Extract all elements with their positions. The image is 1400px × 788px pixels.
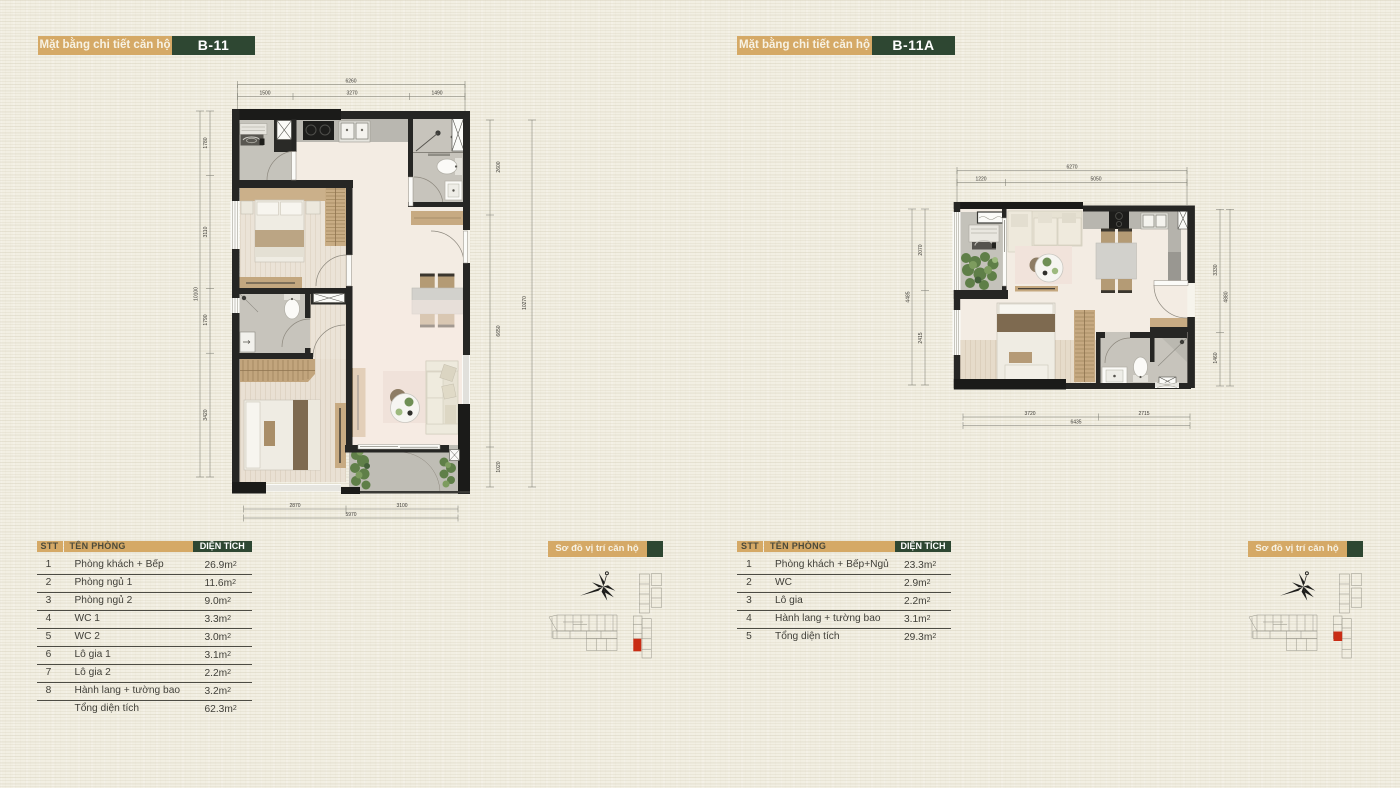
svg-text:1780: 1780 <box>203 137 209 148</box>
svg-text:2870: 2870 <box>289 503 300 509</box>
svg-text:6650: 6650 <box>496 325 502 336</box>
svg-text:2600: 2600 <box>496 161 502 172</box>
svg-text:3270: 3270 <box>346 91 357 97</box>
svg-text:2715: 2715 <box>1138 411 1149 417</box>
svg-text:10270: 10270 <box>522 296 528 310</box>
svg-text:5970: 5970 <box>345 512 356 518</box>
svg-text:2415: 2415 <box>918 332 924 343</box>
svg-text:3720: 3720 <box>1024 411 1035 417</box>
svg-text:1220: 1220 <box>975 177 986 183</box>
svg-text:1490: 1490 <box>431 91 442 97</box>
svg-text:3100: 3100 <box>396 503 407 509</box>
svg-text:10100: 10100 <box>194 287 200 301</box>
svg-text:3110: 3110 <box>203 226 209 237</box>
svg-text:4880: 4880 <box>1224 291 1230 302</box>
svg-text:2070: 2070 <box>918 244 924 255</box>
svg-text:3420: 3420 <box>203 409 209 420</box>
svg-text:6260: 6260 <box>345 79 356 85</box>
svg-text:1790: 1790 <box>203 314 209 325</box>
svg-text:1020: 1020 <box>496 461 502 472</box>
svg-text:1460: 1460 <box>1213 352 1219 363</box>
svg-text:3330: 3330 <box>1213 264 1219 275</box>
svg-text:1500: 1500 <box>259 91 270 97</box>
svg-text:5050: 5050 <box>1090 177 1101 183</box>
svg-text:4485: 4485 <box>906 291 912 302</box>
svg-text:6270: 6270 <box>1066 165 1077 171</box>
svg-text:6435: 6435 <box>1070 420 1081 426</box>
